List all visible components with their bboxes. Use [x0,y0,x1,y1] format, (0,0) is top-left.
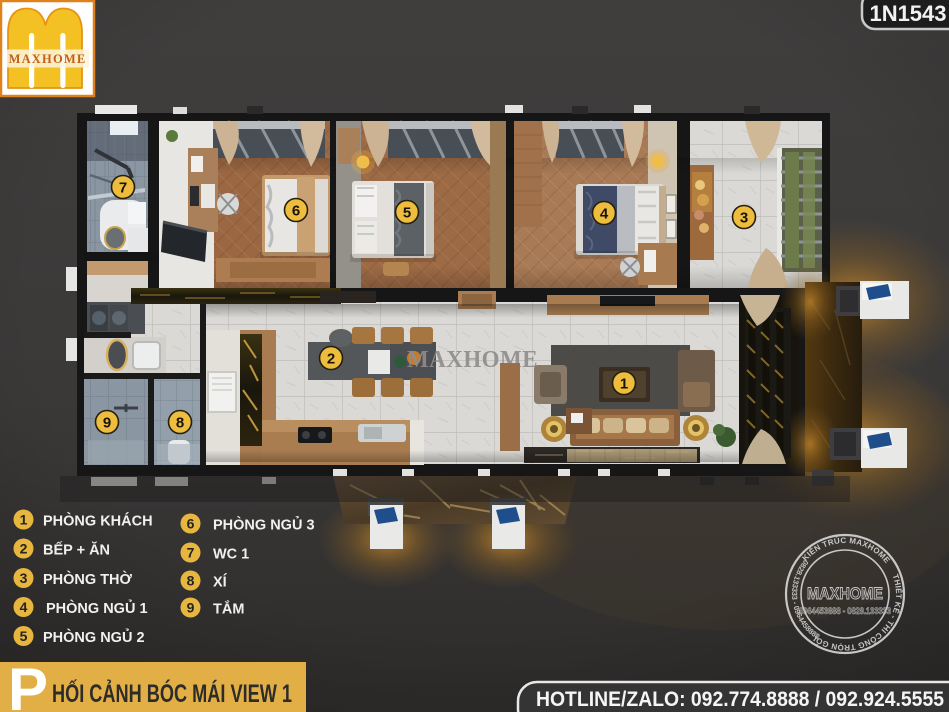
svg-text:0964453888 - 0828.133333: 0964453888 - 0828.133333 [799,606,891,616]
svg-text:8: 8 [176,415,184,432]
svg-text:PHÒNG KHÁCH: PHÒNG KHÁCH [43,512,153,530]
svg-text:5: 5 [403,205,411,222]
svg-text:TẮM: TẮM [213,600,244,618]
svg-text:BẾP + ĂN: BẾP + ĂN [43,542,110,559]
svg-text:6: 6 [292,203,300,220]
svg-text:MAXHOME: MAXHOME [807,584,883,603]
svg-text:7: 7 [119,180,127,197]
svg-text:PHÒNG NGỦ 1: PHÒNG NGỦ 1 [46,599,148,617]
svg-text:HỐI CẢNH BÓC MÁI VIEW 1: HỐI CẢNH BÓC MÁI VIEW 1 [52,678,292,708]
svg-text:9: 9 [187,600,195,616]
svg-text:6: 6 [187,516,195,532]
svg-text:2: 2 [20,541,28,557]
svg-text:8: 8 [187,573,195,589]
svg-text:2: 2 [327,351,335,368]
svg-text:1: 1 [620,376,628,393]
svg-text:PHÒNG THỜ: PHÒNG THỜ [43,570,133,588]
svg-text:1: 1 [20,512,28,528]
svg-text:9: 9 [103,415,111,432]
svg-text:1N1543: 1N1543 [869,1,946,26]
svg-text:HOTLINE/ZALO: 092.774.8888 / 0: HOTLINE/ZALO: 092.774.8888 / 092.924.555… [536,688,944,711]
svg-text:P: P [8,656,48,712]
svg-text:4: 4 [20,599,28,615]
svg-text:MAXHOME: MAXHOME [9,52,87,66]
svg-text:7: 7 [187,545,195,561]
svg-text:5: 5 [20,628,28,644]
svg-text:XÍ: XÍ [213,574,228,591]
svg-text:4: 4 [600,206,609,223]
svg-text:PHÒNG NGỦ 3: PHÒNG NGỦ 3 [213,516,315,534]
svg-text:PHÒNG NGỦ 2: PHÒNG NGỦ 2 [43,628,145,646]
svg-text:WC 1: WC 1 [213,547,249,563]
svg-text:3: 3 [20,570,28,586]
svg-text:3: 3 [740,210,748,227]
